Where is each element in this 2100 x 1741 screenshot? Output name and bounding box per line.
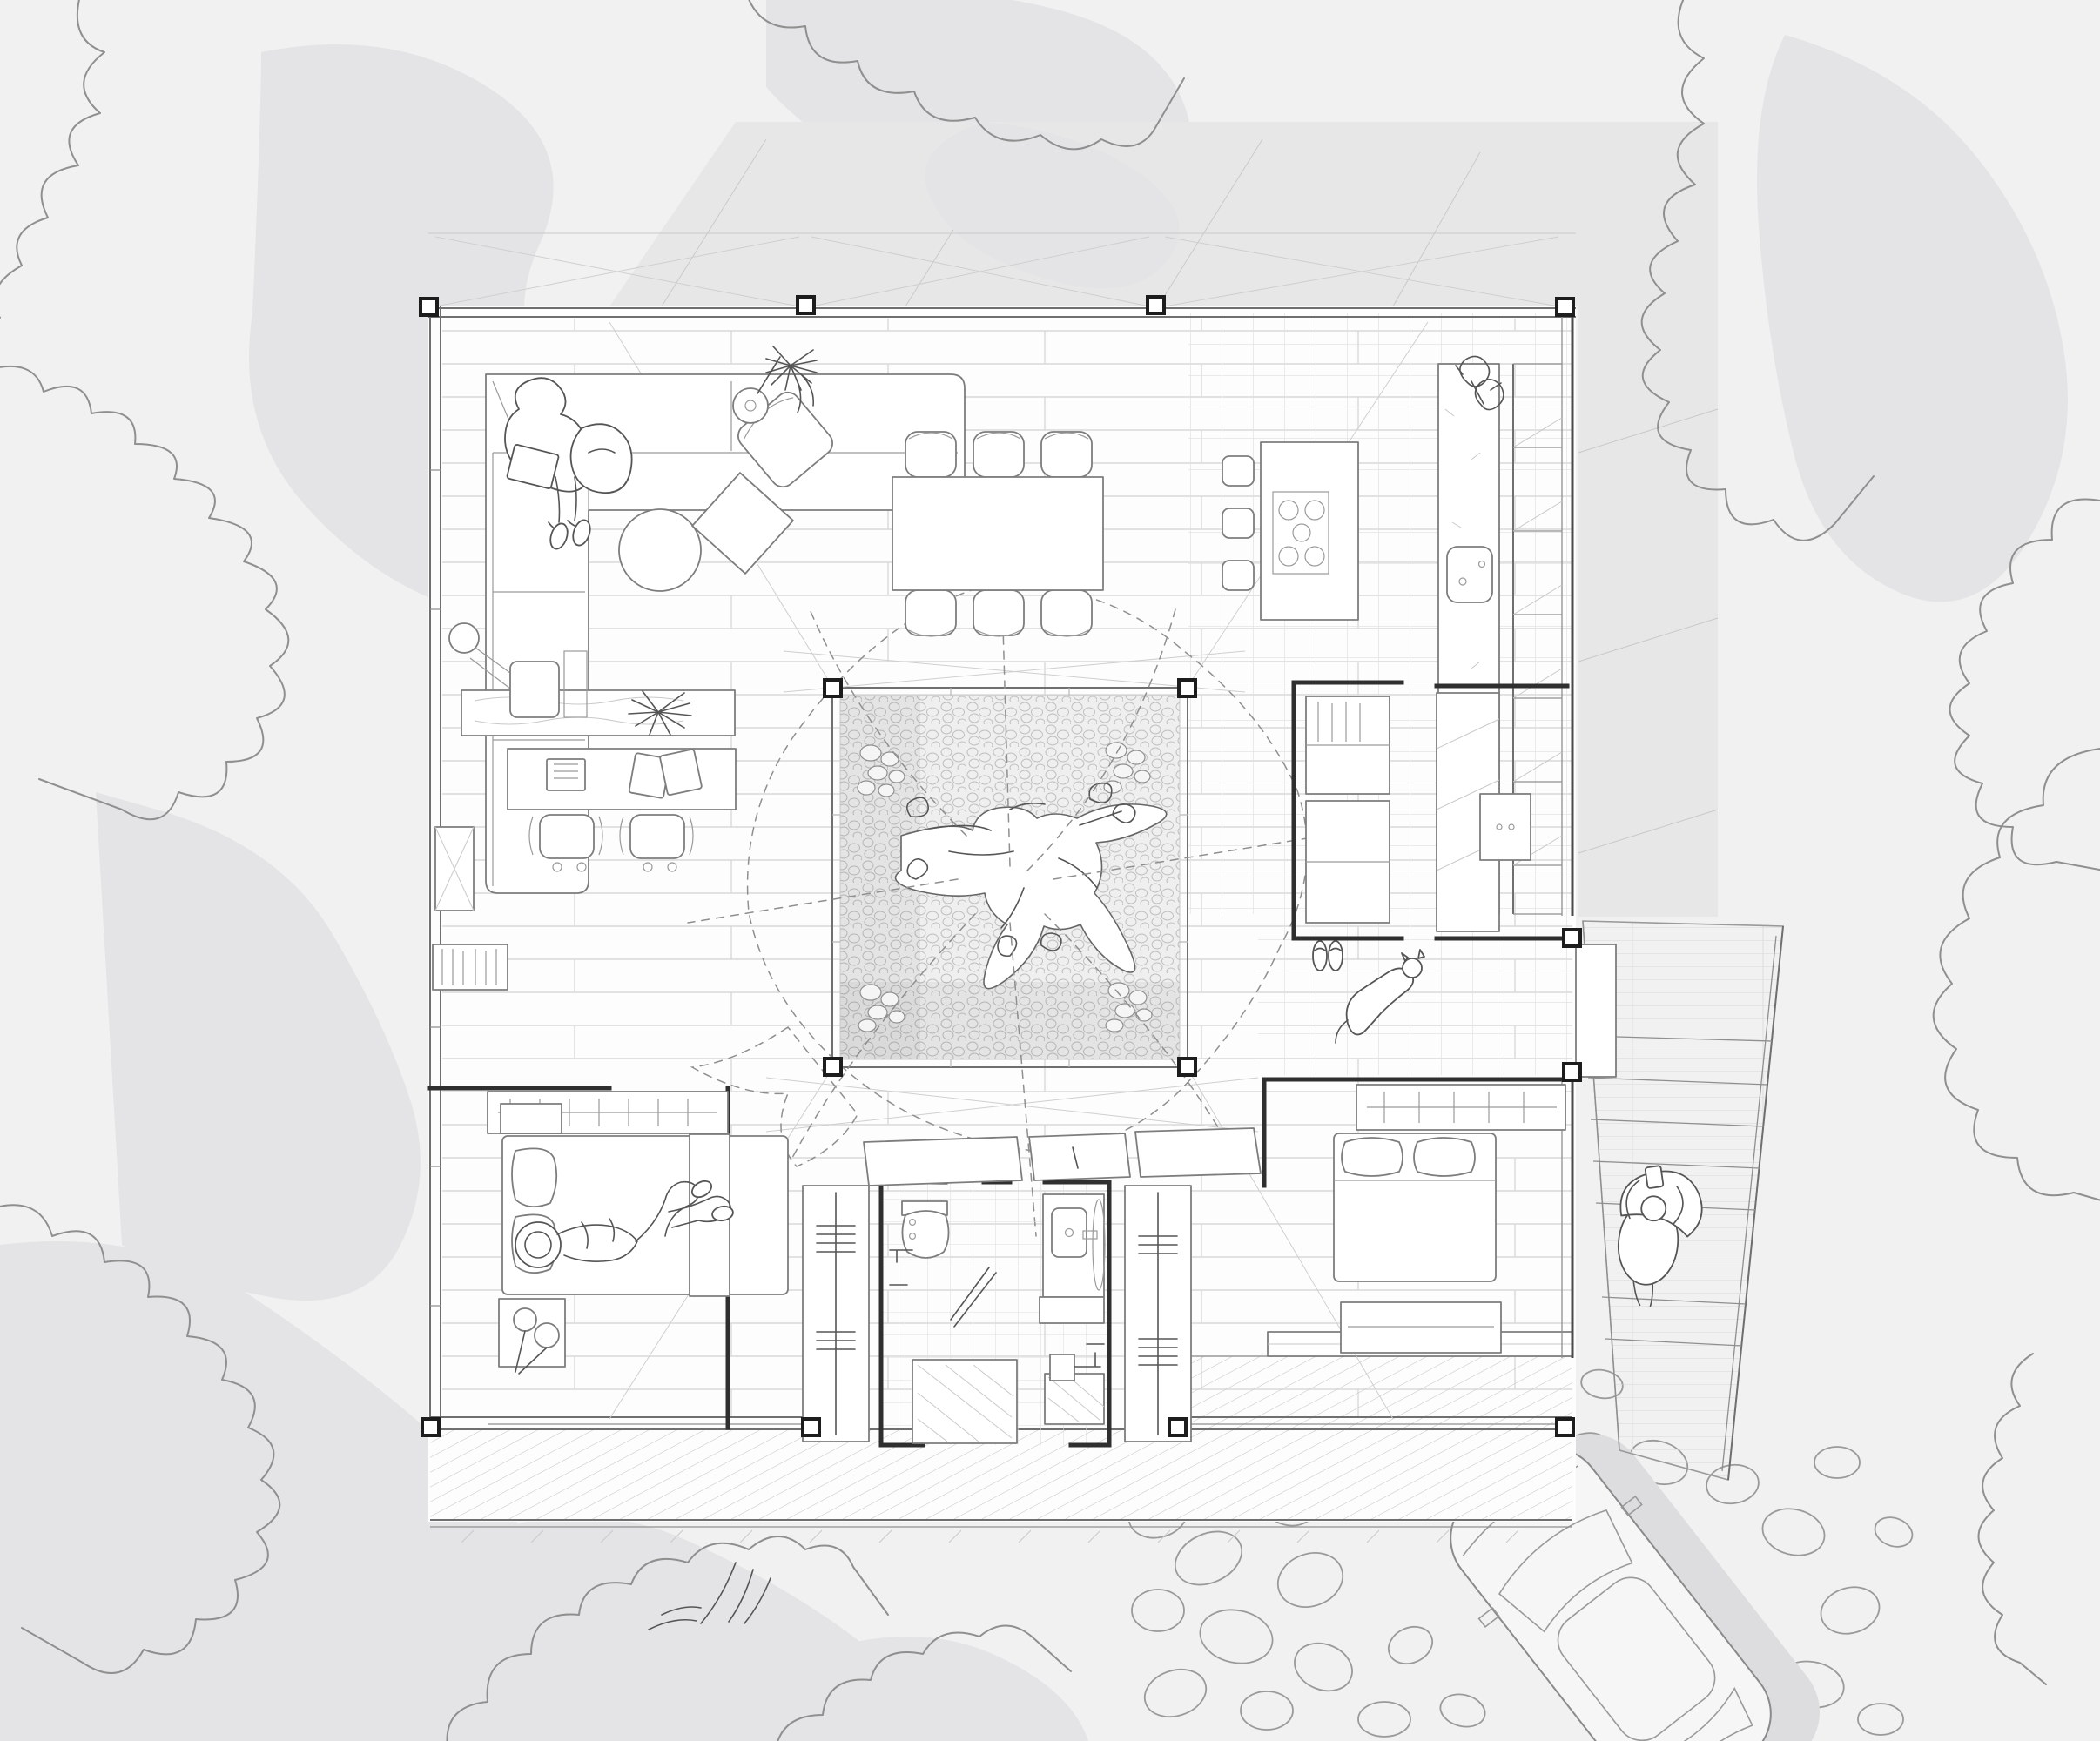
vanity xyxy=(1040,1194,1105,1323)
pantry-unit xyxy=(1294,682,1402,938)
wardrobe-west xyxy=(803,1186,869,1442)
nightstand xyxy=(501,1104,562,1133)
desk xyxy=(508,749,736,810)
floor-plan-drawing xyxy=(0,0,2100,1741)
round-ottoman xyxy=(619,509,701,591)
deck-boards-east xyxy=(1177,1356,1572,1431)
counter-sink xyxy=(1447,547,1492,602)
reader-backpack xyxy=(571,424,632,493)
open-book xyxy=(660,749,703,795)
counter-stools xyxy=(1222,456,1254,590)
napper-hat xyxy=(515,1222,561,1267)
pillow xyxy=(512,1148,556,1207)
bedside-lamps xyxy=(499,1299,565,1374)
bathroom xyxy=(881,1182,1109,1445)
house xyxy=(421,233,1616,1543)
dining-area xyxy=(892,432,1103,636)
pillow xyxy=(1414,1138,1475,1176)
floor-lamp xyxy=(733,388,768,423)
dining-table xyxy=(892,477,1103,590)
dresser xyxy=(1341,1302,1501,1353)
walker-phone xyxy=(1645,1166,1663,1188)
wardrobe-east xyxy=(1125,1186,1191,1442)
pillow xyxy=(1342,1138,1403,1176)
entry-step xyxy=(1576,944,1616,1077)
floor-plan-canvas: Courtyard house floor plan — architectur… xyxy=(0,0,2100,1741)
kitchen-island xyxy=(1261,442,1358,620)
